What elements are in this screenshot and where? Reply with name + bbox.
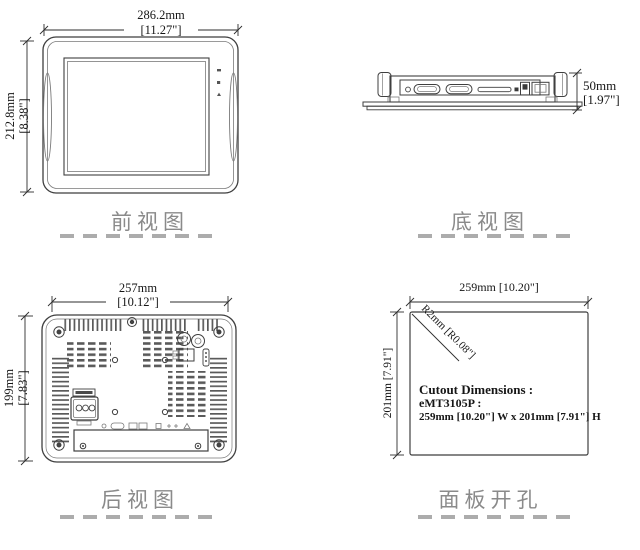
- front-device-body: [43, 37, 238, 193]
- reset-switch: [515, 88, 519, 92]
- legend-icons: [102, 423, 190, 429]
- front-width-mm: 286.2mm: [137, 8, 185, 22]
- depth-mm: 50mm: [583, 78, 616, 93]
- front-width-dimension: 286.2mm [11.27"]: [40, 8, 242, 37]
- divider-cutout: [418, 515, 578, 519]
- note-line-3: 259mm [10.20"] W x 201mm [7.91"] H: [419, 411, 601, 423]
- sd-card-slot: [478, 87, 511, 91]
- serial-port-1: [414, 85, 440, 94]
- depth-inch: [1.97"]: [583, 92, 620, 107]
- rear-device-body: [42, 315, 236, 462]
- right-vent-column: [210, 355, 227, 445]
- left-vent-column: [52, 355, 69, 445]
- vent-grid-a: [67, 342, 111, 368]
- rear-width-mm: 257mm: [119, 281, 157, 295]
- front-screen-bezel: [64, 58, 209, 175]
- top-vent-left: [64, 319, 124, 331]
- cutout-height-label: 201mm [7.91"]: [382, 348, 394, 419]
- front-led-indicators: [217, 69, 221, 96]
- front-view-title: 前视图: [55, 206, 245, 236]
- rear-width-inch: [10.12"]: [117, 295, 159, 309]
- rear-height-mm: 199mm: [2, 369, 16, 407]
- cutout-note: Cutout Dimensions : eMT3105P : 259mm [10…: [419, 382, 601, 423]
- cutout-width-label: 259mm [10.20"]: [459, 280, 539, 294]
- front-screen: [68, 62, 206, 172]
- connector-bay: [74, 430, 208, 451]
- divider-rear: [60, 515, 213, 519]
- divider-bottom: [418, 234, 574, 238]
- usb-port: [521, 82, 530, 95]
- rear-width-dimension: 257mm [10.12"]: [48, 281, 232, 312]
- note-line-2: eMT3105P :: [419, 396, 481, 410]
- front-height-dimension: 212.8mm [8.38"]: [3, 37, 34, 196]
- vent-grid-c: [168, 371, 208, 417]
- bezel-flange: [363, 102, 582, 110]
- note-line-1: Cutout Dimensions :: [419, 382, 533, 397]
- rear-height-inch: [7.83"]: [16, 370, 30, 405]
- front-height-mm: 212.8mm: [3, 92, 17, 140]
- power-terminal-block: [71, 389, 98, 425]
- front-width-inch: [11.27"]: [140, 23, 181, 37]
- cutout-view-title: 面板开孔: [393, 484, 588, 514]
- bottom-depth-dimension: 50mm [1.97"]: [569, 69, 620, 114]
- cutout-height-dimension: 201mm [7.91"]: [382, 308, 404, 459]
- rear-view-title: 后视图: [45, 484, 235, 514]
- top-vent-center: [140, 319, 188, 331]
- dimension-drawing-page: 286.2mm [11.27"] 212.8mm [8.38"]: [0, 0, 640, 550]
- serial-port-2: [446, 85, 472, 94]
- rear-height-dimension: 199mm [7.83"]: [2, 312, 33, 465]
- bottom-view-title: 底视图: [395, 206, 585, 236]
- divider-front: [60, 234, 213, 238]
- cutout-width-dimension: 259mm [10.20"]: [406, 280, 592, 309]
- front-height-inch: [8.38"]: [17, 98, 31, 133]
- bottom-device-profile: [363, 73, 582, 110]
- audio-jack: [406, 87, 411, 92]
